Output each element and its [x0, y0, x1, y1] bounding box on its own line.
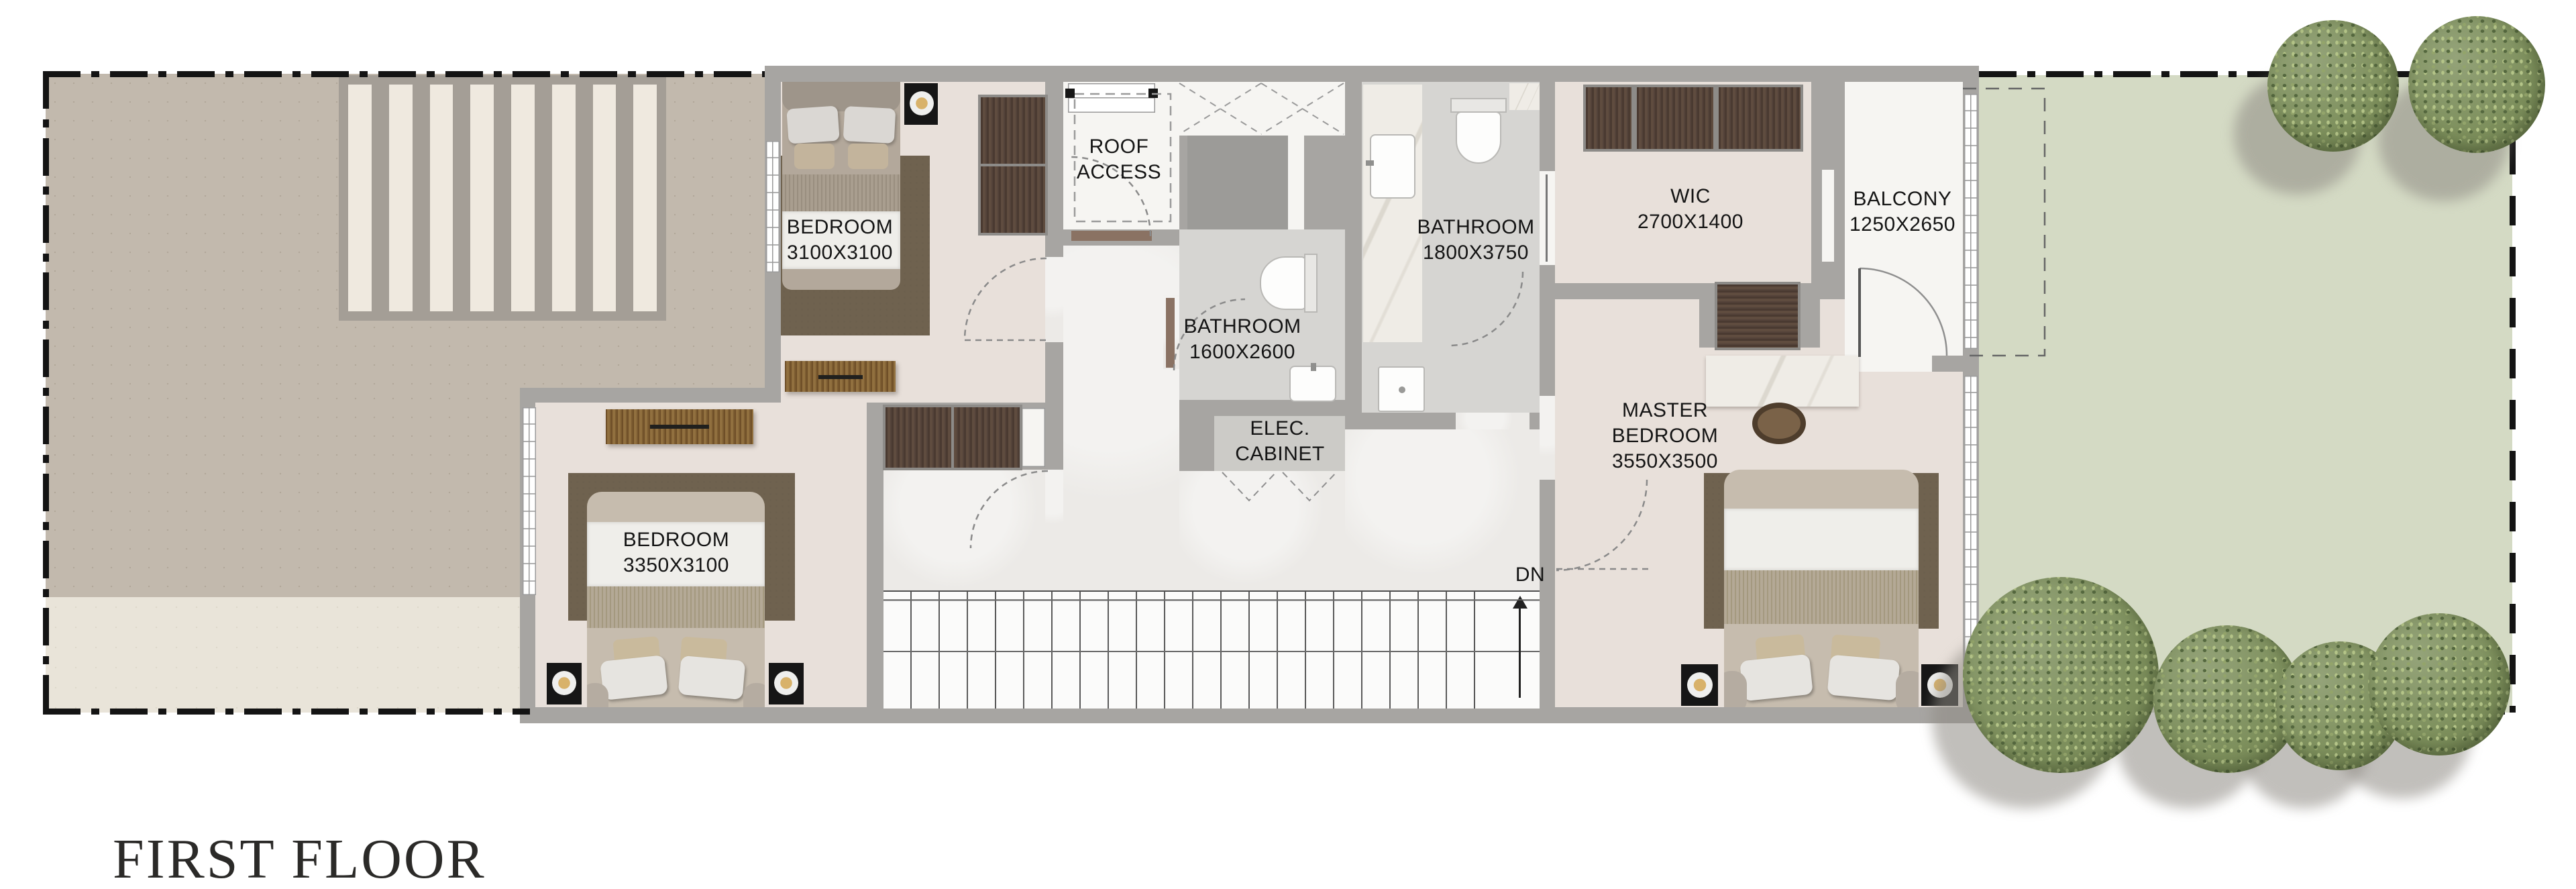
floor-plan: BEDROOM3100X3100 ROOFACCESS BATHROOM1600…	[0, 0, 2576, 889]
label-bedroom1: BEDROOM3100X3100	[787, 215, 894, 266]
label-master-bedroom: MASTERBEDROOM3550X3500	[1612, 398, 1719, 474]
label-bathroom-small: BATHROOM1600X2600	[1183, 314, 1301, 365]
label-stairs-dn: DN	[1515, 562, 1545, 588]
boundary-east	[2510, 145, 2516, 713]
label-wic: WIC2700X1400	[1638, 184, 1743, 235]
tree	[2368, 613, 2510, 755]
label-elec-cabinet: ELEC.CABINET	[1235, 416, 1325, 467]
tree	[1963, 577, 2159, 773]
label-bedroom2: BEDROOM3350X3100	[623, 527, 730, 578]
page-title: FIRST FLOOR	[113, 827, 486, 889]
boundary-bottom-west	[43, 709, 530, 715]
label-roof-access: ROOFACCESS	[1077, 134, 1161, 185]
label-balcony: BALCONY1250X2650	[1849, 187, 1955, 238]
tree	[2267, 20, 2399, 152]
boundary-west	[43, 71, 49, 713]
label-bathroom-master: BATHROOM1800X3750	[1417, 215, 1534, 266]
boundary-top-west	[43, 71, 765, 77]
tree	[2408, 16, 2545, 153]
